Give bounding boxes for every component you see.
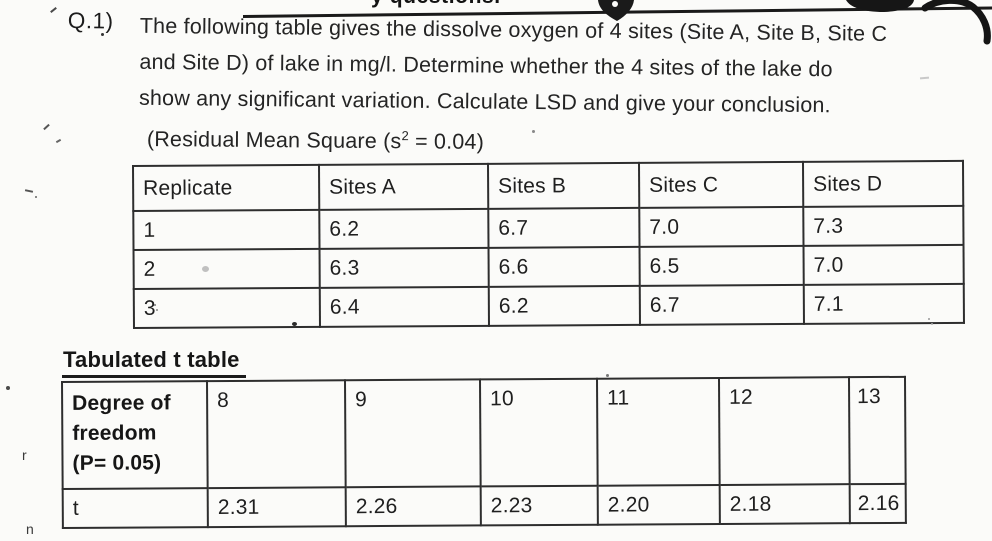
table-cell: 2: [134, 249, 320, 289]
scan-speck: [154, 304, 156, 306]
scan-speck: [50, 7, 57, 13]
scan-speck: [292, 322, 297, 326]
table-cell: 6.7: [488, 208, 639, 248]
scan-speck: [6, 386, 10, 390]
scan-speck: [25, 189, 33, 193]
oxygen-table-header-row: Replicate Sites A Sites B Sites C Sites …: [133, 161, 963, 211]
table-cell: 6.2: [319, 209, 488, 249]
t-value-row: t 2.31 2.26 2.23 2.20 2.18 2.16: [63, 484, 906, 528]
t-table: Degree of freedom (P= 0.05) 8 9 10 11 12…: [61, 376, 907, 529]
t-value: 2.18: [720, 484, 850, 524]
question-number: Q.1): [68, 8, 114, 34]
scan-speck: [928, 318, 930, 320]
scan-speck: [43, 124, 50, 130]
table-row: 3 6.4 6.2 6.7 7.1: [134, 284, 964, 328]
df-value: 9: [345, 379, 481, 487]
question-line-3: show any significant variation. Calculat…: [139, 80, 972, 125]
table-cell: 7.0: [804, 245, 964, 285]
t-table-title: Tabulated t table: [62, 347, 246, 378]
df-header-line-2: freedom: [72, 418, 198, 449]
oxygen-table: Replicate Sites A Sites B Sites C Sites …: [132, 160, 965, 329]
t-value: 2.20: [598, 485, 720, 525]
table-cell: 7.0: [639, 207, 803, 247]
t-value: 2.31: [208, 487, 346, 527]
scan-speck: [156, 309, 158, 311]
df-value: 13: [849, 377, 906, 484]
scan-speck: [202, 266, 209, 272]
scan-speck: [532, 130, 535, 133]
residual-note: (Residual Mean Square (s2 = 0.04): [147, 127, 484, 155]
table-cell: 6.4: [320, 287, 489, 327]
t-value: 2.26: [346, 486, 481, 526]
t-table-wrapper: Degree of freedom (P= 0.05) 8 9 10 11 12…: [61, 376, 907, 529]
table-cell: 6.7: [640, 285, 804, 325]
t-value: 2.16: [850, 484, 906, 523]
t-row-label: t: [63, 488, 208, 528]
residual-note-suffix: = 0.04): [409, 129, 484, 154]
df-header-line-3: (P= 0.05): [72, 448, 198, 479]
df-value: 12: [719, 377, 850, 485]
table-cell: 6.3: [320, 248, 489, 288]
df-value: 10: [480, 379, 598, 487]
column-header-sites-c: Sites C: [639, 162, 803, 208]
column-header-sites-a: Sites A: [319, 164, 488, 210]
pin-mark-hole: [612, 1, 618, 7]
t-table-header-row: Degree of freedom (P= 0.05) 8 9 10 11 12…: [62, 377, 906, 489]
margin-mark-glyph: n: [26, 521, 34, 537]
t-value: 2.23: [481, 486, 598, 526]
column-header-replicate: Replicate: [133, 165, 319, 211]
table-cell: 7.3: [803, 206, 963, 246]
table-cell: 6.6: [489, 247, 640, 287]
question-block: Q.1) The following table gives the disso…: [67, 7, 973, 125]
table-cell: 6.2: [489, 286, 640, 326]
table-cell: 1: [133, 210, 319, 250]
column-header-sites-d: Sites D: [803, 161, 963, 207]
residual-note-superscript: 2: [401, 128, 409, 143]
df-row-header: Degree of freedom (P= 0.05): [62, 381, 208, 489]
table-row: 1 6.2 6.7 7.0 7.3: [133, 206, 963, 250]
oxygen-table-wrapper: Replicate Sites A Sites B Sites C Sites …: [132, 160, 965, 329]
clipped-top-text: y questions.: [371, 0, 571, 9]
scan-speck: [606, 374, 609, 377]
clipped-top-text-content: y questions.: [371, 0, 571, 9]
scan-speck: [101, 33, 104, 36]
table-cell: 6.5: [640, 246, 804, 286]
df-header-line-1: Degree of: [72, 388, 198, 419]
column-header-sites-b: Sites B: [488, 163, 639, 209]
df-value: 11: [597, 378, 720, 486]
scanned-page: y questions. Q.1) The following table gi…: [0, 0, 992, 541]
scan-speck: [56, 139, 61, 143]
scan-speck: [931, 323, 933, 325]
table-cell: 7.1: [804, 284, 964, 324]
question-text: The following table gives the dissolve o…: [139, 8, 973, 125]
residual-note-prefix: (Residual Mean Square (s: [147, 127, 402, 153]
scan-speck: [35, 196, 37, 198]
table-row: 2 6.3 6.6 6.5 7.0: [134, 245, 964, 289]
df-value: 8: [207, 380, 346, 488]
margin-mark-glyph: r: [22, 447, 27, 463]
